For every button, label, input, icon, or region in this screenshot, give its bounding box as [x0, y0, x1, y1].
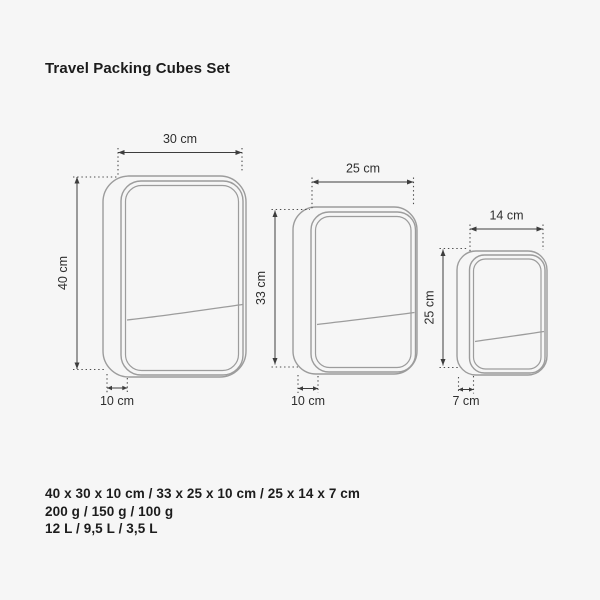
- cube-large-front-outline: [121, 181, 243, 375]
- cube-medium-height-label: 33 cm: [254, 271, 268, 305]
- spec-volumes: 12 L / 9,5 L / 3,5 L: [45, 520, 360, 538]
- cube-medium-width-dimension: 25 cm: [312, 162, 414, 211]
- spec-dimensions: 40 x 30 x 10 cm / 33 x 25 x 10 cm / 25 x…: [45, 485, 360, 503]
- cube-small-height-label: 25 cm: [423, 290, 437, 324]
- cube-medium: 25 cm 33 cm 10 cm: [254, 162, 417, 409]
- cube-medium-width-label: 25 cm: [346, 162, 380, 176]
- spec-weights: 200 g / 150 g / 100 g: [45, 503, 360, 521]
- cube-large-depth-dimension: 10 cm: [100, 374, 134, 408]
- cube-medium-height-dimension: 33 cm: [254, 210, 310, 368]
- cube-large-height-dimension: 40 cm: [56, 177, 117, 370]
- cube-large-width-dimension: 30 cm: [118, 132, 242, 175]
- cube-large-height-label: 40 cm: [56, 256, 70, 290]
- cube-medium-front-outline: [311, 212, 416, 372]
- cube-small-height-dimension: 25 cm: [423, 249, 468, 368]
- cube-large-depth-label: 10 cm: [100, 394, 134, 408]
- cube-large: 30 cm 40 cm 10 cm: [56, 132, 246, 408]
- cube-medium-depth-label: 10 cm: [291, 394, 325, 408]
- product-dimension-figure: Travel Packing Cubes Set 30 cm: [0, 0, 600, 600]
- cube-small-front-outline: [470, 255, 546, 373]
- cube-small: 14 cm 25 cm 7 cm: [423, 209, 548, 409]
- cube-medium-depth-dimension: 10 cm: [291, 375, 325, 408]
- cube-small-width-label: 14 cm: [489, 209, 523, 223]
- cube-small-depth-dimension: 7 cm: [452, 376, 479, 408]
- cube-small-width-dimension: 14 cm: [470, 209, 543, 253]
- cube-small-depth-label: 7 cm: [452, 394, 479, 408]
- cube-large-width-label: 30 cm: [163, 132, 197, 146]
- spec-text-block: 40 x 30 x 10 cm / 33 x 25 x 10 cm / 25 x…: [45, 485, 360, 538]
